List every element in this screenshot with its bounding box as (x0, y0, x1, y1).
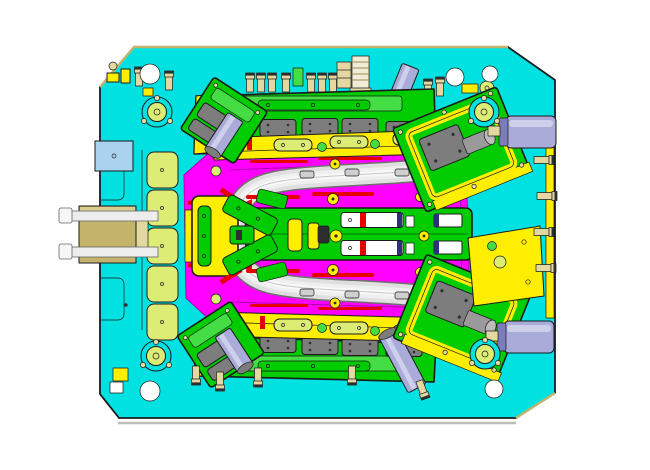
wear-pad-column (147, 152, 178, 340)
latch-lock-left (59, 206, 158, 263)
mold-assembly-drawing (0, 0, 650, 470)
cad-viewport (0, 0, 650, 470)
center-ejector-rail (246, 208, 472, 260)
